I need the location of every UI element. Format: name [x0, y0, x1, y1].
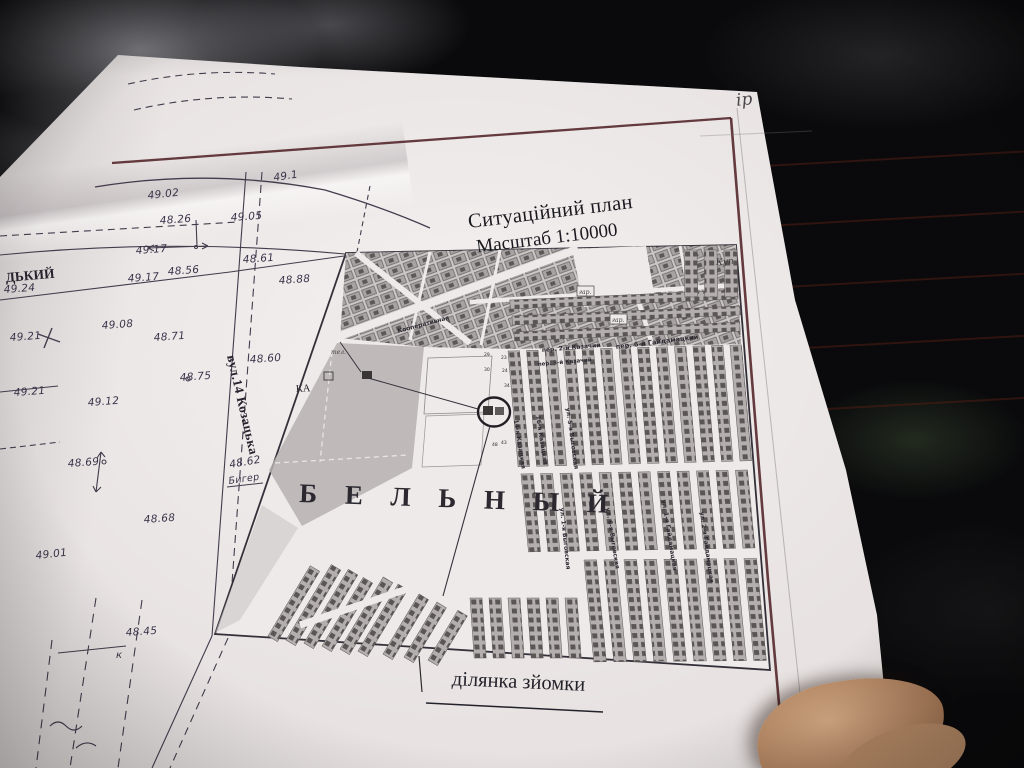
note-k: к — [116, 650, 122, 661]
elevation-label: 48.75 — [179, 370, 211, 384]
caption-underline — [426, 703, 603, 712]
building-number: 48 — [492, 442, 498, 448]
label-ka: КА — [296, 383, 312, 395]
elevation-label: 49.12 — [87, 395, 119, 409]
building-number: 34 — [504, 383, 510, 389]
elevation-label: 48.68 — [143, 512, 175, 526]
elevation-label: 49.02 — [147, 187, 180, 202]
elevation-label: 49.08 — [101, 318, 133, 332]
elevation-label: 48.62 — [228, 454, 261, 471]
elevation-label: 48.45 — [125, 625, 157, 639]
elevation-label: 49.17 — [127, 271, 159, 285]
building-number: 29 — [484, 352, 490, 358]
elevation-label: 48.88 — [278, 273, 310, 287]
map-inset — [215, 245, 770, 712]
elevation-label: 49.01 — [35, 547, 68, 562]
elevation-label: 49.21 — [9, 330, 41, 344]
dark-building-symbol — [362, 371, 372, 379]
elevation-label: 48.26 — [159, 213, 191, 227]
building-number: 30 — [484, 367, 490, 373]
elevation-label: 48.61 — [242, 252, 274, 266]
building-number: 43 — [501, 440, 507, 446]
label-tel: тел. — [331, 349, 346, 356]
photo-of-map-document: ДЬКИЙ вул.14 Козацька Б Е Л Ь Н Ы Й КА т… — [0, 0, 1024, 768]
elevation-label: 49.1 — [273, 169, 299, 184]
elevation-label: 48.69 — [67, 456, 99, 470]
street-label-kozatska: вул.14 Козацька — [224, 353, 262, 456]
label-kup: Куп — [715, 257, 735, 268]
elevation-label: 48.60 — [249, 352, 281, 366]
elevation-label: 49.24 — [3, 282, 35, 296]
building-number: 23 — [501, 355, 507, 361]
elevation-label: 49.17 — [135, 243, 167, 257]
elevation-label: 49.05 — [230, 210, 262, 224]
plan-drawing: ДЬКИЙ вул.14 Козацька Б Е Л Ь Н Ы Й КА т… — [0, 0, 1024, 768]
label-garage-1: гар. — [579, 289, 591, 296]
label-garage-2: гар. — [612, 317, 624, 324]
handwritten-corner-mark: ір — [735, 89, 753, 111]
elevation-label: 49.21 — [13, 385, 45, 399]
elevation-label: 48.71 — [153, 330, 185, 344]
note-vygon: Бигер — [228, 472, 260, 487]
elevation-label: 48.56 — [167, 264, 199, 278]
building-number: 24 — [502, 368, 508, 374]
